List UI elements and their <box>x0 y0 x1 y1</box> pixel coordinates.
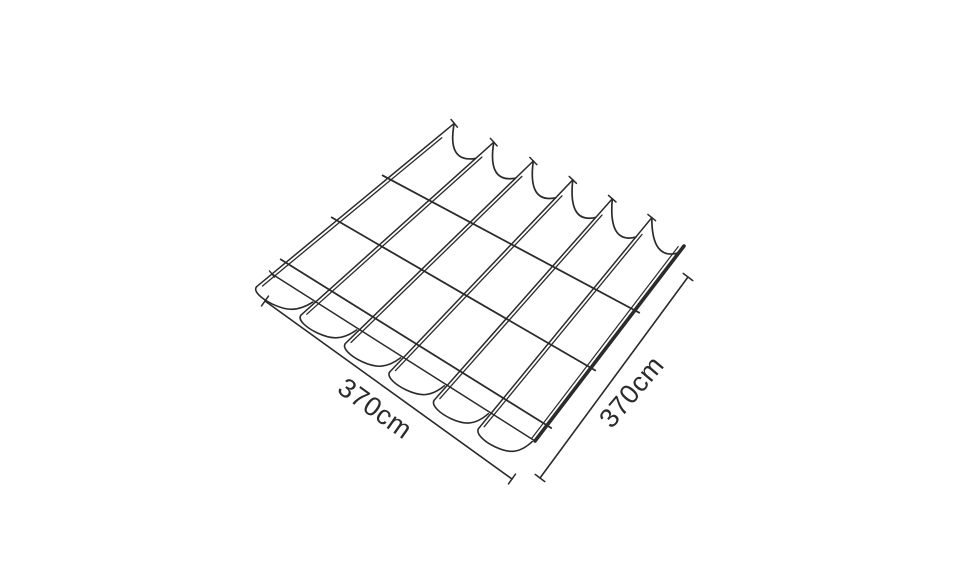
dimension-label-right: 370cm <box>593 350 670 433</box>
figure-canvas: 370cm 370cm <box>0 0 960 587</box>
dimension-label-left: 370cm <box>332 372 417 445</box>
canopy-diagram: 370cm 370cm <box>0 0 960 587</box>
